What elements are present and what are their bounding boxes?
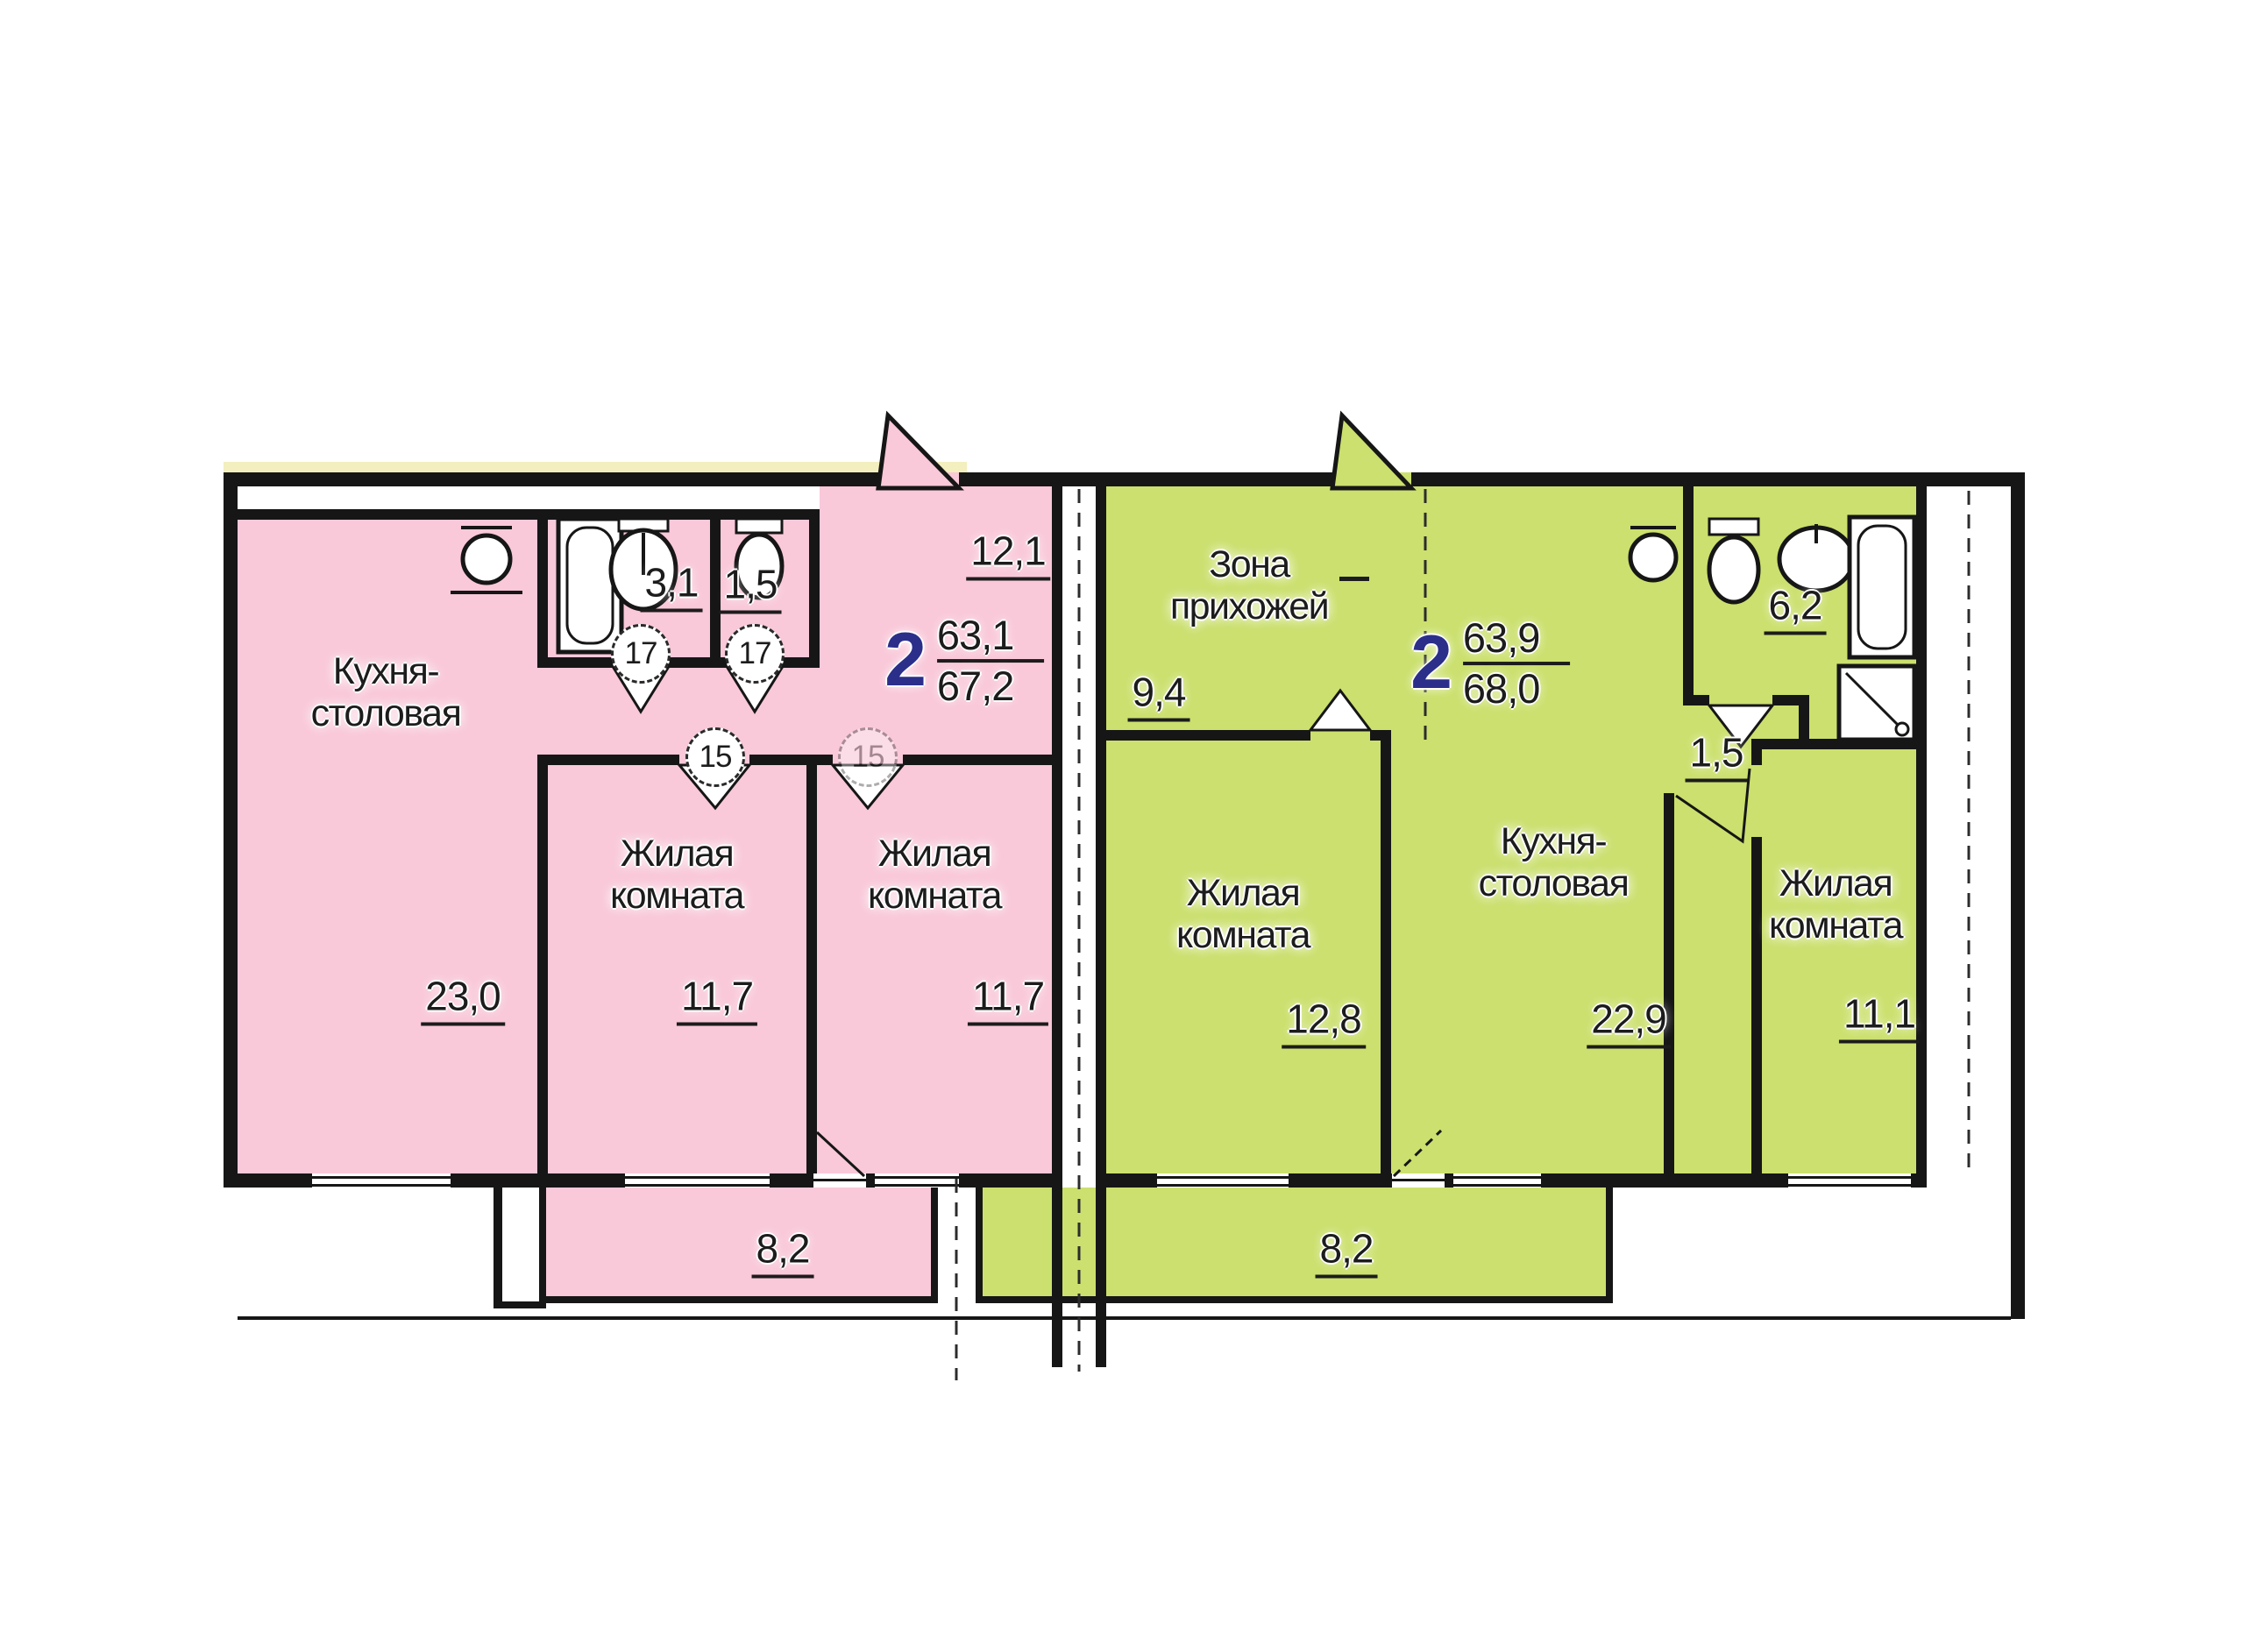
- area-wc-left: 1,5: [720, 561, 782, 614]
- room-label-bedroom2-left: Жилая комната: [868, 833, 1001, 917]
- area-bedroom2-left: 11,7: [968, 973, 1048, 1026]
- area-hall-left: 12,1: [966, 528, 1050, 581]
- unit-label-left: 2 63,1 67,2: [884, 614, 1044, 707]
- area-hall-zone-right: 9,4: [1128, 669, 1190, 722]
- room-label-bedroom1-left: Жилая комната: [610, 833, 743, 917]
- total-area: 67,2: [937, 665, 1013, 707]
- area-bedroom1-left: 11,7: [677, 973, 757, 1026]
- door-tag-wc-left: 17: [725, 624, 785, 684]
- area-bedroom2-right: 11,1: [1839, 990, 1920, 1044]
- unit-rooms-count: 2: [1410, 629, 1452, 697]
- room-label-hall-zone-right: Зона прихожей: [1170, 543, 1328, 627]
- room-label-kitchen-left: Кухня- столовая: [311, 650, 461, 734]
- total-area: 68,0: [1463, 668, 1539, 710]
- area-kitchen-left: 23,0: [421, 973, 505, 1026]
- door-tag-bedroom2-left: 15: [838, 727, 898, 787]
- unit-rooms-count: 2: [884, 627, 927, 694]
- door-tag-bedroom1-left: 15: [685, 727, 745, 787]
- room-label-kitchen-right: Кухня- столовая: [1479, 820, 1629, 904]
- area-bathroom-right: 6,2: [1765, 582, 1827, 635]
- floor-plan: Кухня- столовая 23,0 3,1 1,5 12,1 2 63,1…: [0, 0, 2244, 1652]
- living-area: 63,1: [937, 614, 1013, 656]
- area-bedroom1-right: 12,8: [1282, 996, 1366, 1049]
- area-balcony-left: 8,2: [752, 1225, 814, 1279]
- door-tag-bathroom-left: 17: [611, 624, 671, 684]
- room-label-bedroom2-right: Жилая комната: [1769, 862, 1902, 947]
- unit-label-right: 2 63,9 68,0: [1410, 617, 1570, 710]
- room-label-bedroom1-right: Жилая комната: [1176, 872, 1310, 956]
- area-bathroom-left: 3,1: [641, 559, 703, 613]
- area-corridor-right: 1,5: [1686, 729, 1748, 783]
- living-area: 63,9: [1463, 617, 1539, 659]
- unit-area-fraction: 63,1 67,2: [937, 614, 1044, 707]
- area-kitchen-right: 22,9: [1587, 996, 1671, 1049]
- labels: Кухня- столовая 23,0 3,1 1,5 12,1 2 63,1…: [0, 0, 2244, 1652]
- area-balcony-right: 8,2: [1316, 1225, 1378, 1279]
- unit-area-fraction: 63,9 68,0: [1463, 617, 1570, 710]
